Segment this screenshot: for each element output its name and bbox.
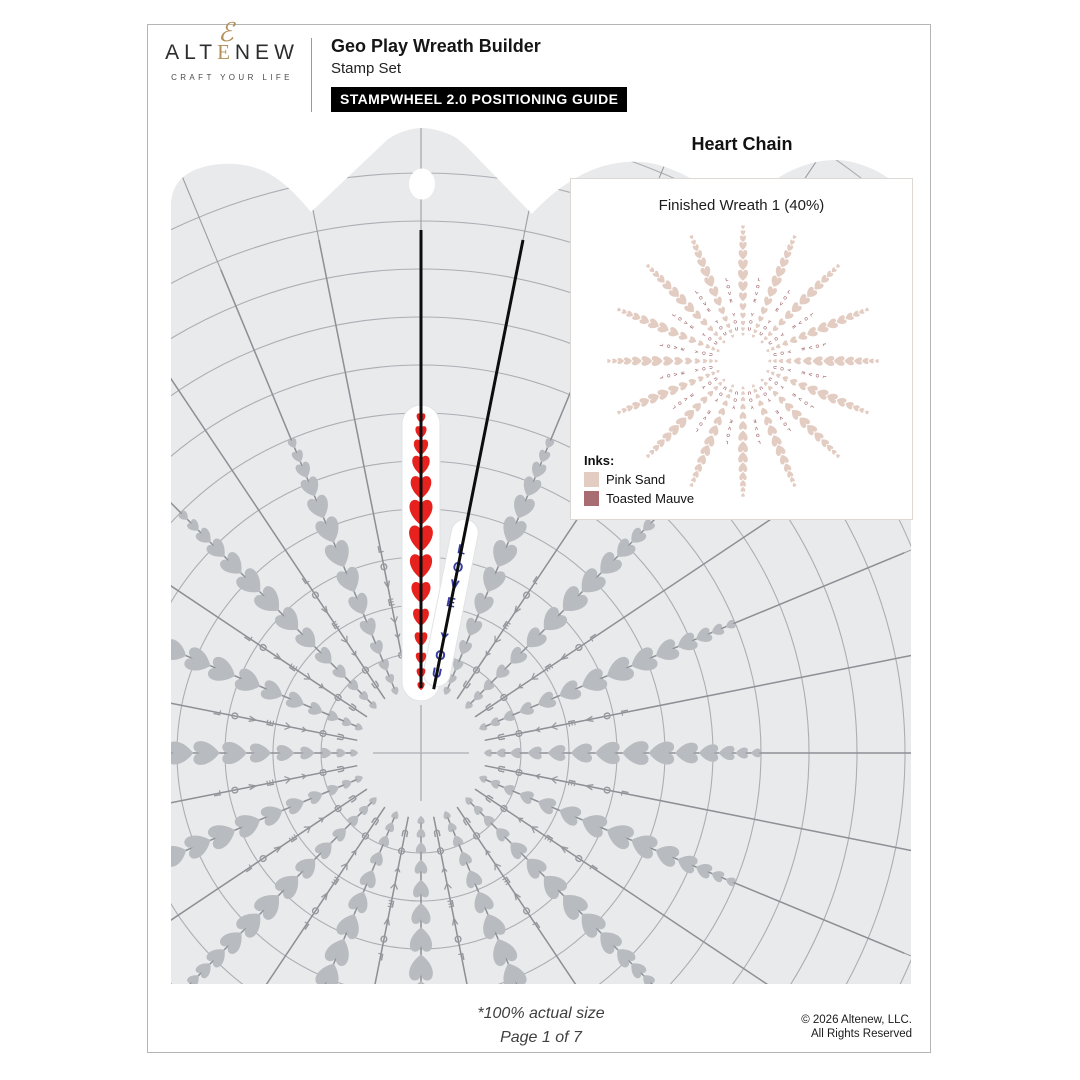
- svg-text:O: O: [779, 351, 785, 356]
- svg-text:O: O: [701, 366, 707, 371]
- svg-text:O: O: [698, 421, 704, 427]
- ink-legend-row: Toasted Mauve: [584, 491, 694, 506]
- svg-text:Y: Y: [766, 319, 771, 325]
- svg-text:E: E: [706, 307, 711, 313]
- svg-text:O: O: [755, 433, 760, 439]
- svg-text:O: O: [762, 325, 768, 331]
- pink-sand-swatch: [584, 472, 599, 487]
- svg-text:L: L: [809, 405, 815, 410]
- svg-text:E: E: [791, 324, 797, 329]
- svg-text:E: E: [791, 392, 797, 397]
- page-number: Page 1 of 7: [401, 1026, 681, 1050]
- svg-text:U: U: [713, 340, 719, 346]
- svg-text:L: L: [671, 312, 677, 317]
- svg-text:Y: Y: [701, 384, 707, 389]
- finished-wreath-panel: LOVEYOULOVEYOULOVEYOULOVEYOULOVEYOULOVEY…: [570, 178, 913, 520]
- svg-text:O: O: [726, 432, 731, 438]
- svg-text:V: V: [807, 372, 813, 377]
- svg-text:E: E: [753, 298, 757, 304]
- wreath-love-you-text: LOVEYOU: [772, 343, 827, 357]
- wreath-love-you-text: LOVEYOU: [725, 277, 739, 332]
- svg-text:O: O: [779, 367, 785, 372]
- svg-text:V: V: [808, 346, 814, 351]
- svg-text:L: L: [757, 440, 761, 445]
- svg-text:O: O: [733, 319, 738, 325]
- footer-notes: *100% actual size Page 1 of 7: [401, 1002, 681, 1050]
- wreath-love-you-text: LOVEYOU: [659, 365, 714, 379]
- svg-text:Y: Y: [714, 397, 719, 403]
- toasted-mauve-label: Toasted Mauve: [606, 491, 694, 506]
- svg-text:O: O: [756, 284, 761, 290]
- svg-text:O: O: [707, 336, 713, 342]
- svg-text:E: E: [774, 409, 779, 415]
- svg-text:U: U: [767, 340, 773, 346]
- svg-text:U: U: [747, 390, 752, 396]
- wreath-heart-chain: [607, 356, 718, 366]
- svg-text:U: U: [722, 330, 728, 336]
- svg-text:Y: Y: [701, 332, 707, 337]
- wreath-heart-chain: [646, 378, 727, 459]
- svg-text:O: O: [707, 380, 713, 386]
- svg-text:U: U: [712, 376, 718, 382]
- brand-post: NEW: [235, 41, 299, 64]
- svg-text:Y: Y: [766, 397, 771, 403]
- svg-text:L: L: [725, 277, 729, 282]
- wreath-heart-chain: [646, 264, 727, 345]
- svg-text:O: O: [677, 400, 683, 406]
- ink-legend-row: Pink Sand: [584, 472, 694, 487]
- toasted-mauve-swatch: [584, 491, 599, 506]
- wreath-heart-chain: [738, 225, 748, 336]
- svg-text:Y: Y: [694, 350, 700, 354]
- header-divider: [311, 38, 312, 112]
- svg-text:E: E: [689, 324, 695, 329]
- svg-text:Y: Y: [732, 312, 736, 318]
- document-title: Geo Play Wreath Builder: [331, 36, 627, 57]
- stamp-set-heading: Heart Chain: [592, 134, 892, 155]
- pink-sand-label: Pink Sand: [606, 472, 665, 487]
- svg-text:O: O: [666, 373, 672, 378]
- copyright-line1: © 2026 Altenew, LLC.: [801, 1013, 912, 1027]
- hanging-hole: [409, 169, 435, 200]
- svg-text:E: E: [774, 307, 779, 313]
- svg-text:U: U: [772, 365, 778, 370]
- svg-text:U: U: [767, 376, 773, 382]
- brand-script-swash-icon: ℰ: [218, 18, 234, 48]
- svg-text:E: E: [729, 298, 733, 304]
- svg-text:V: V: [683, 319, 689, 325]
- svg-text:Y: Y: [779, 332, 785, 337]
- svg-text:L: L: [694, 427, 699, 433]
- svg-text:E: E: [800, 347, 806, 351]
- svg-text:O: O: [803, 316, 809, 322]
- svg-text:L: L: [786, 427, 791, 433]
- svg-text:U: U: [758, 331, 764, 337]
- svg-text:E: E: [706, 409, 711, 415]
- svg-text:Y: Y: [750, 312, 754, 318]
- svg-text:U: U: [708, 352, 714, 357]
- svg-text:O: O: [762, 391, 768, 397]
- wreath-heart-chain: [760, 378, 841, 459]
- header-title-block: Geo Play Wreath Builder Stamp Set STAMPW…: [331, 36, 627, 112]
- svg-text:O: O: [749, 319, 754, 325]
- svg-text:L: L: [659, 343, 664, 347]
- wreath-heart-chain: [768, 356, 879, 366]
- wreath-heart-chain: [738, 386, 748, 497]
- svg-text:V: V: [797, 396, 803, 402]
- svg-text:V: V: [778, 415, 784, 421]
- svg-text:U: U: [735, 326, 740, 332]
- svg-text:Y: Y: [779, 384, 785, 389]
- actual-size-note: *100% actual size: [401, 1002, 681, 1026]
- svg-text:V: V: [682, 396, 688, 402]
- svg-text:O: O: [718, 325, 724, 331]
- svg-text:O: O: [773, 380, 779, 386]
- svg-text:O: O: [733, 397, 738, 403]
- svg-text:E: E: [753, 418, 757, 424]
- svg-text:Y: Y: [732, 404, 736, 410]
- wreath-love-you-text: LOVEYOU: [725, 390, 739, 445]
- svg-text:O: O: [773, 336, 779, 342]
- copyright: © 2026 Altenew, LLC. All Rights Reserved: [801, 1013, 912, 1042]
- svg-text:U: U: [758, 385, 764, 391]
- svg-text:O: O: [814, 374, 820, 379]
- svg-text:Y: Y: [786, 368, 792, 372]
- svg-text:O: O: [701, 351, 707, 356]
- svg-text:U: U: [722, 385, 728, 391]
- svg-text:O: O: [782, 421, 788, 427]
- svg-text:E: E: [729, 418, 733, 424]
- svg-text:L: L: [822, 375, 827, 379]
- svg-text:V: V: [778, 301, 784, 307]
- svg-text:L: L: [757, 277, 761, 282]
- brand-pre: ALT: [165, 41, 217, 64]
- svg-text:V: V: [673, 345, 679, 350]
- svg-text:E: E: [680, 347, 686, 351]
- svg-text:U: U: [734, 390, 739, 396]
- svg-text:O: O: [803, 400, 809, 406]
- svg-text:V: V: [701, 415, 707, 421]
- document-subtitle: Stamp Set: [331, 60, 627, 77]
- wreath-love-you-text: LOVEYOU: [747, 277, 761, 332]
- ink-legend-label: Inks:: [584, 453, 694, 468]
- wreath-heart-chain: [760, 264, 841, 345]
- copyright-line2: All Rights Reserved: [801, 1027, 912, 1041]
- wreath-love-you-text: LOVEYOU: [659, 343, 714, 357]
- svg-text:E: E: [680, 371, 686, 375]
- positioning-guide-diagram: LOVEYOULOVEYOULOVEYOULOVEYOULOVEYOULOVEY…: [0, 0, 1080, 1080]
- svg-text:Y: Y: [694, 368, 700, 372]
- svg-text:V: V: [754, 291, 759, 297]
- svg-text:Y: Y: [786, 350, 792, 354]
- altenew-logo: ALTENEWℰ CRAFT YOUR LIFE: [158, 40, 306, 82]
- svg-text:E: E: [689, 392, 695, 397]
- svg-text:L: L: [822, 343, 827, 347]
- svg-text:L: L: [725, 440, 729, 445]
- brand-wordmark: ALTENEWℰ: [158, 40, 306, 65]
- svg-text:V: V: [673, 371, 679, 376]
- svg-text:Y: Y: [750, 404, 754, 410]
- svg-text:O: O: [677, 316, 683, 322]
- brand-tagline: CRAFT YOUR LIFE: [158, 73, 306, 82]
- svg-text:L: L: [659, 375, 664, 379]
- svg-text:L: L: [671, 404, 677, 409]
- svg-text:U: U: [708, 365, 714, 370]
- svg-text:L: L: [787, 289, 792, 295]
- svg-text:O: O: [815, 344, 821, 349]
- svg-text:V: V: [797, 320, 803, 326]
- svg-text:L: L: [694, 289, 699, 295]
- svg-text:U: U: [772, 353, 778, 358]
- svg-text:O: O: [782, 295, 788, 301]
- svg-text:V: V: [702, 300, 708, 306]
- svg-text:V: V: [753, 426, 758, 432]
- svg-text:V: V: [728, 291, 733, 297]
- svg-text:E: E: [800, 371, 806, 375]
- svg-text:V: V: [727, 425, 732, 431]
- svg-text:O: O: [666, 344, 672, 349]
- svg-text:L: L: [809, 312, 815, 317]
- finished-wreath-title: Finished Wreath 1 (40%): [571, 197, 912, 214]
- svg-text:O: O: [748, 397, 753, 403]
- svg-text:U: U: [747, 326, 752, 332]
- wreath-love-you-text: LOVEYOU: [747, 390, 761, 445]
- svg-text:O: O: [726, 284, 731, 290]
- stampwheel-banner: STAMPWHEEL 2.0 POSITIONING GUIDE: [331, 87, 627, 112]
- svg-text:O: O: [698, 295, 704, 301]
- svg-text:O: O: [718, 391, 724, 397]
- svg-text:Y: Y: [714, 319, 719, 325]
- wreath-love-you-text: LOVEYOU: [772, 365, 827, 379]
- ink-legend: Inks: Pink Sand Toasted Mauve: [584, 453, 694, 506]
